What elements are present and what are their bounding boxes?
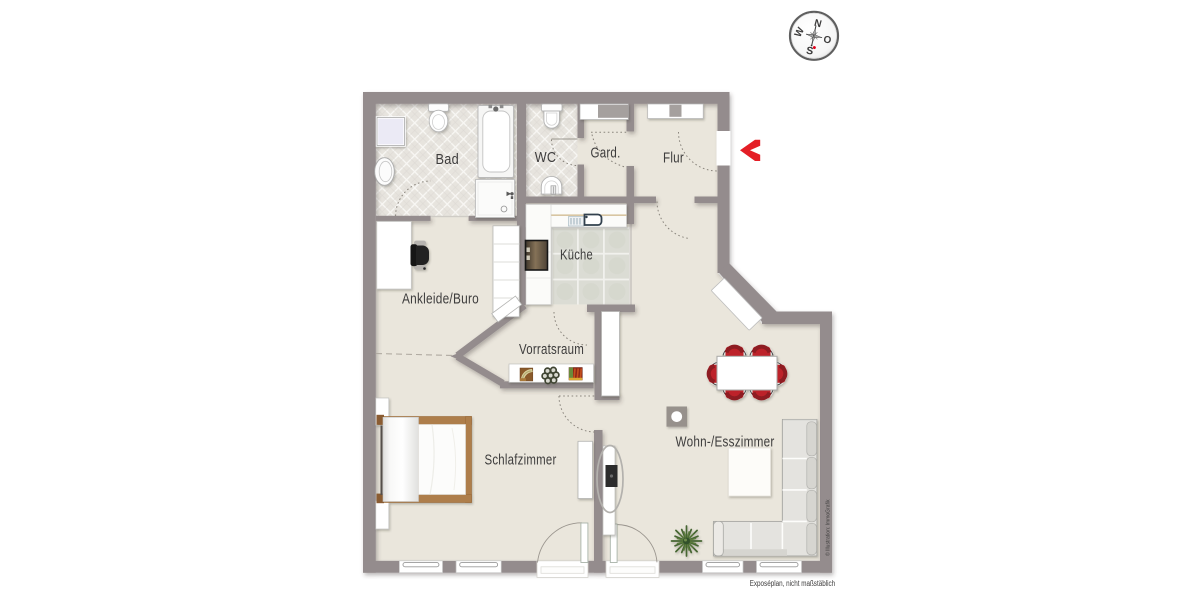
svg-text:Küche: Küche	[560, 247, 593, 264]
svg-text:Bad: Bad	[436, 151, 460, 168]
svg-text:Schlafzimmer: Schlafzimmer	[485, 452, 557, 469]
svg-text:Exposéplan, nicht maßstäblich: Exposéplan, nicht maßstäblich	[750, 579, 836, 588]
svg-text:WC: WC	[535, 149, 557, 166]
svg-text:Gard.: Gard.	[591, 145, 621, 162]
svg-text:Ankleide/Buro: Ankleide/Buro	[402, 291, 479, 308]
svg-text:Wohn-/Esszimmer: Wohn-/Esszimmer	[676, 434, 775, 451]
svg-text:Vorratsraum: Vorratsraum	[519, 341, 584, 358]
svg-text:© Illustration: ImmoGrafik: © Illustration: ImmoGrafik	[825, 499, 832, 556]
svg-text:Flur: Flur	[663, 150, 684, 167]
